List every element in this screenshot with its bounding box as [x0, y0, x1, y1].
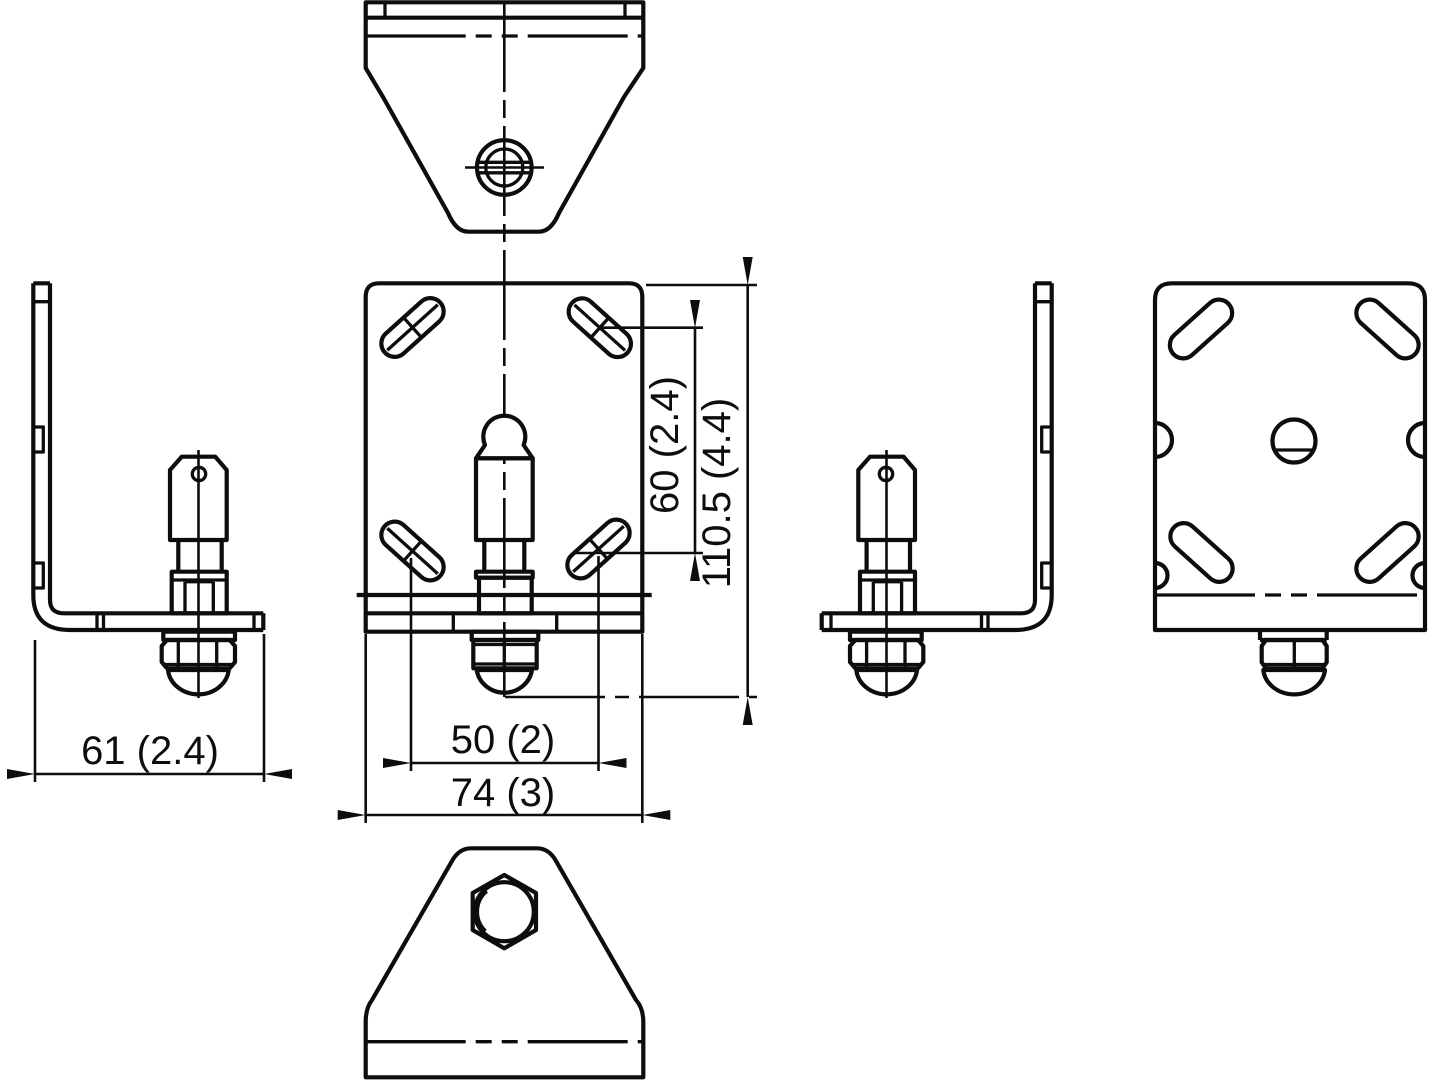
weld-nut-bottom	[473, 875, 536, 948]
screw-circle	[1273, 420, 1316, 463]
dimension-60: 60 (2.4)	[576, 328, 703, 553]
ball-stud-right	[850, 450, 923, 698]
right-base-ticks	[831, 613, 988, 630]
left-side-view	[33, 283, 263, 698]
rear-slot-bottom-left	[1165, 518, 1238, 588]
ball-pin	[476, 416, 533, 459]
right-bend-and-base	[822, 595, 1052, 630]
bracket-multiview-drawing: 61 (2.4) 50 (2) 74 (3) 60 (2.4) 110.5 (4…	[0, 0, 1434, 1080]
rear-slot-top-right	[1351, 294, 1424, 364]
bottom-view	[366, 848, 644, 1077]
dim-overall-height-label: 110.5 (4.4)	[695, 398, 739, 589]
dim-slot-spacing-h-label: 50 (2)	[451, 718, 556, 762]
nut-thread-arc	[478, 885, 531, 938]
screw-head-top	[465, 140, 544, 195]
left-base-ticks	[97, 613, 254, 630]
rear-nut-assembly	[1260, 630, 1327, 694]
right-side-view	[822, 283, 1052, 698]
dimension-61: 61 (2.4)	[35, 634, 264, 782]
rear-view	[1155, 283, 1425, 694]
slot-hole-top-left	[376, 293, 449, 363]
dim-side-depth-label: 61 (2.4)	[81, 729, 219, 773]
slot-hole-bottom-left	[376, 516, 449, 586]
hex-nut-facets	[1264, 640, 1325, 668]
dome-cap	[1263, 670, 1325, 694]
technical-drawing-page: 61 (2.4) 50 (2) 74 (3) 60 (2.4) 110.5 (4…	[0, 0, 1434, 1080]
hex-nut-facets	[475, 640, 535, 668]
rear-slot-top-left	[1164, 294, 1237, 364]
dim-overall-width-label: 74 (3)	[451, 771, 556, 815]
stud-shaft	[178, 540, 221, 572]
nut-bore-circle	[475, 882, 534, 941]
ball-stud-left	[162, 450, 235, 698]
rear-screw-head	[1273, 420, 1316, 463]
hex-nut-outline	[473, 875, 536, 948]
dim-slot-spacing-v-label: 60 (2.4)	[643, 376, 687, 514]
stud-shaft	[867, 540, 910, 572]
